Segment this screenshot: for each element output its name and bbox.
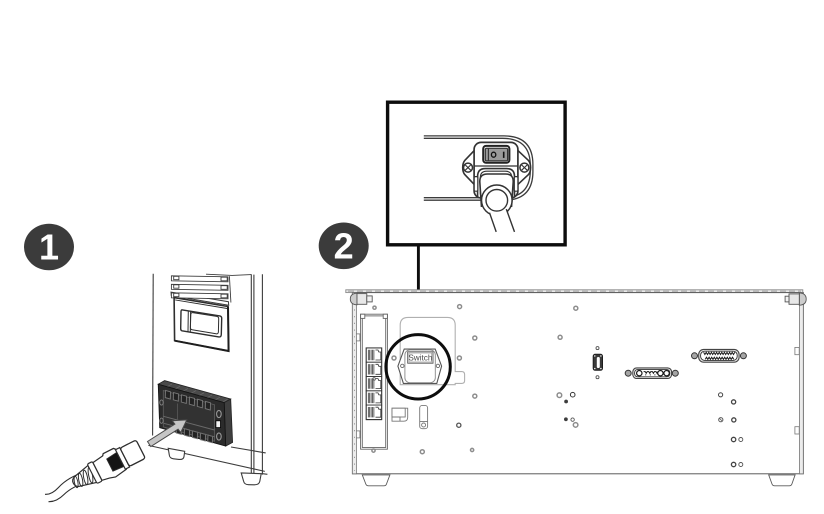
svg-text:1: 1 [39,227,59,268]
svg-text:2: 2 [334,225,354,266]
svg-text:Switch: Switch [408,353,433,362]
